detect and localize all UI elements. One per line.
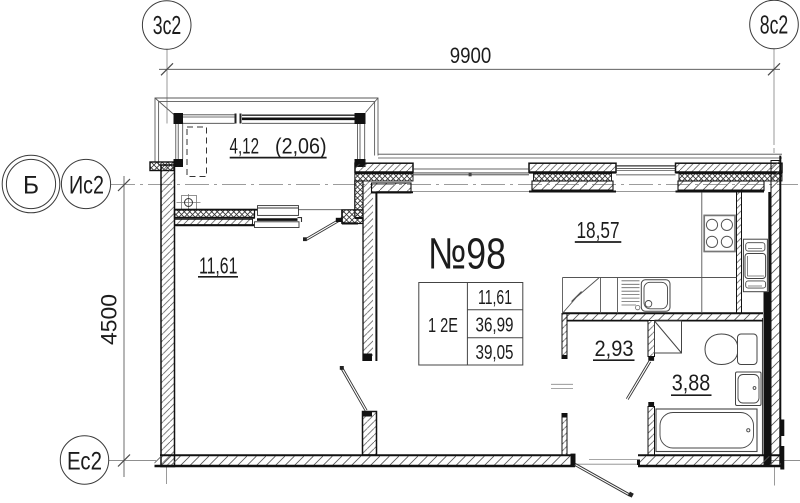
svg-text:39,05: 39,05 <box>476 342 514 364</box>
svg-text:Б: Б <box>23 171 39 199</box>
svg-text:(2,06): (2,06) <box>275 134 327 159</box>
svg-text:Ис2: Ис2 <box>69 171 104 199</box>
svg-text:№98: №98 <box>428 230 506 279</box>
svg-text:8с2: 8с2 <box>760 10 789 40</box>
svg-text:2,93: 2,93 <box>595 336 634 361</box>
svg-text:4500: 4500 <box>97 294 122 345</box>
svg-text:9900: 9900 <box>450 43 492 68</box>
svg-text:4,12: 4,12 <box>230 134 260 159</box>
svg-text:36,99: 36,99 <box>476 315 514 337</box>
svg-text:3,88: 3,88 <box>672 370 711 396</box>
svg-text:11,61: 11,61 <box>478 287 512 309</box>
svg-text:11,61: 11,61 <box>199 253 238 279</box>
svg-text:Ес2: Ес2 <box>67 447 102 475</box>
svg-text:18,57: 18,57 <box>577 217 620 243</box>
svg-text:1 2Е: 1 2Е <box>428 315 458 337</box>
svg-text:3с2: 3с2 <box>153 10 182 40</box>
